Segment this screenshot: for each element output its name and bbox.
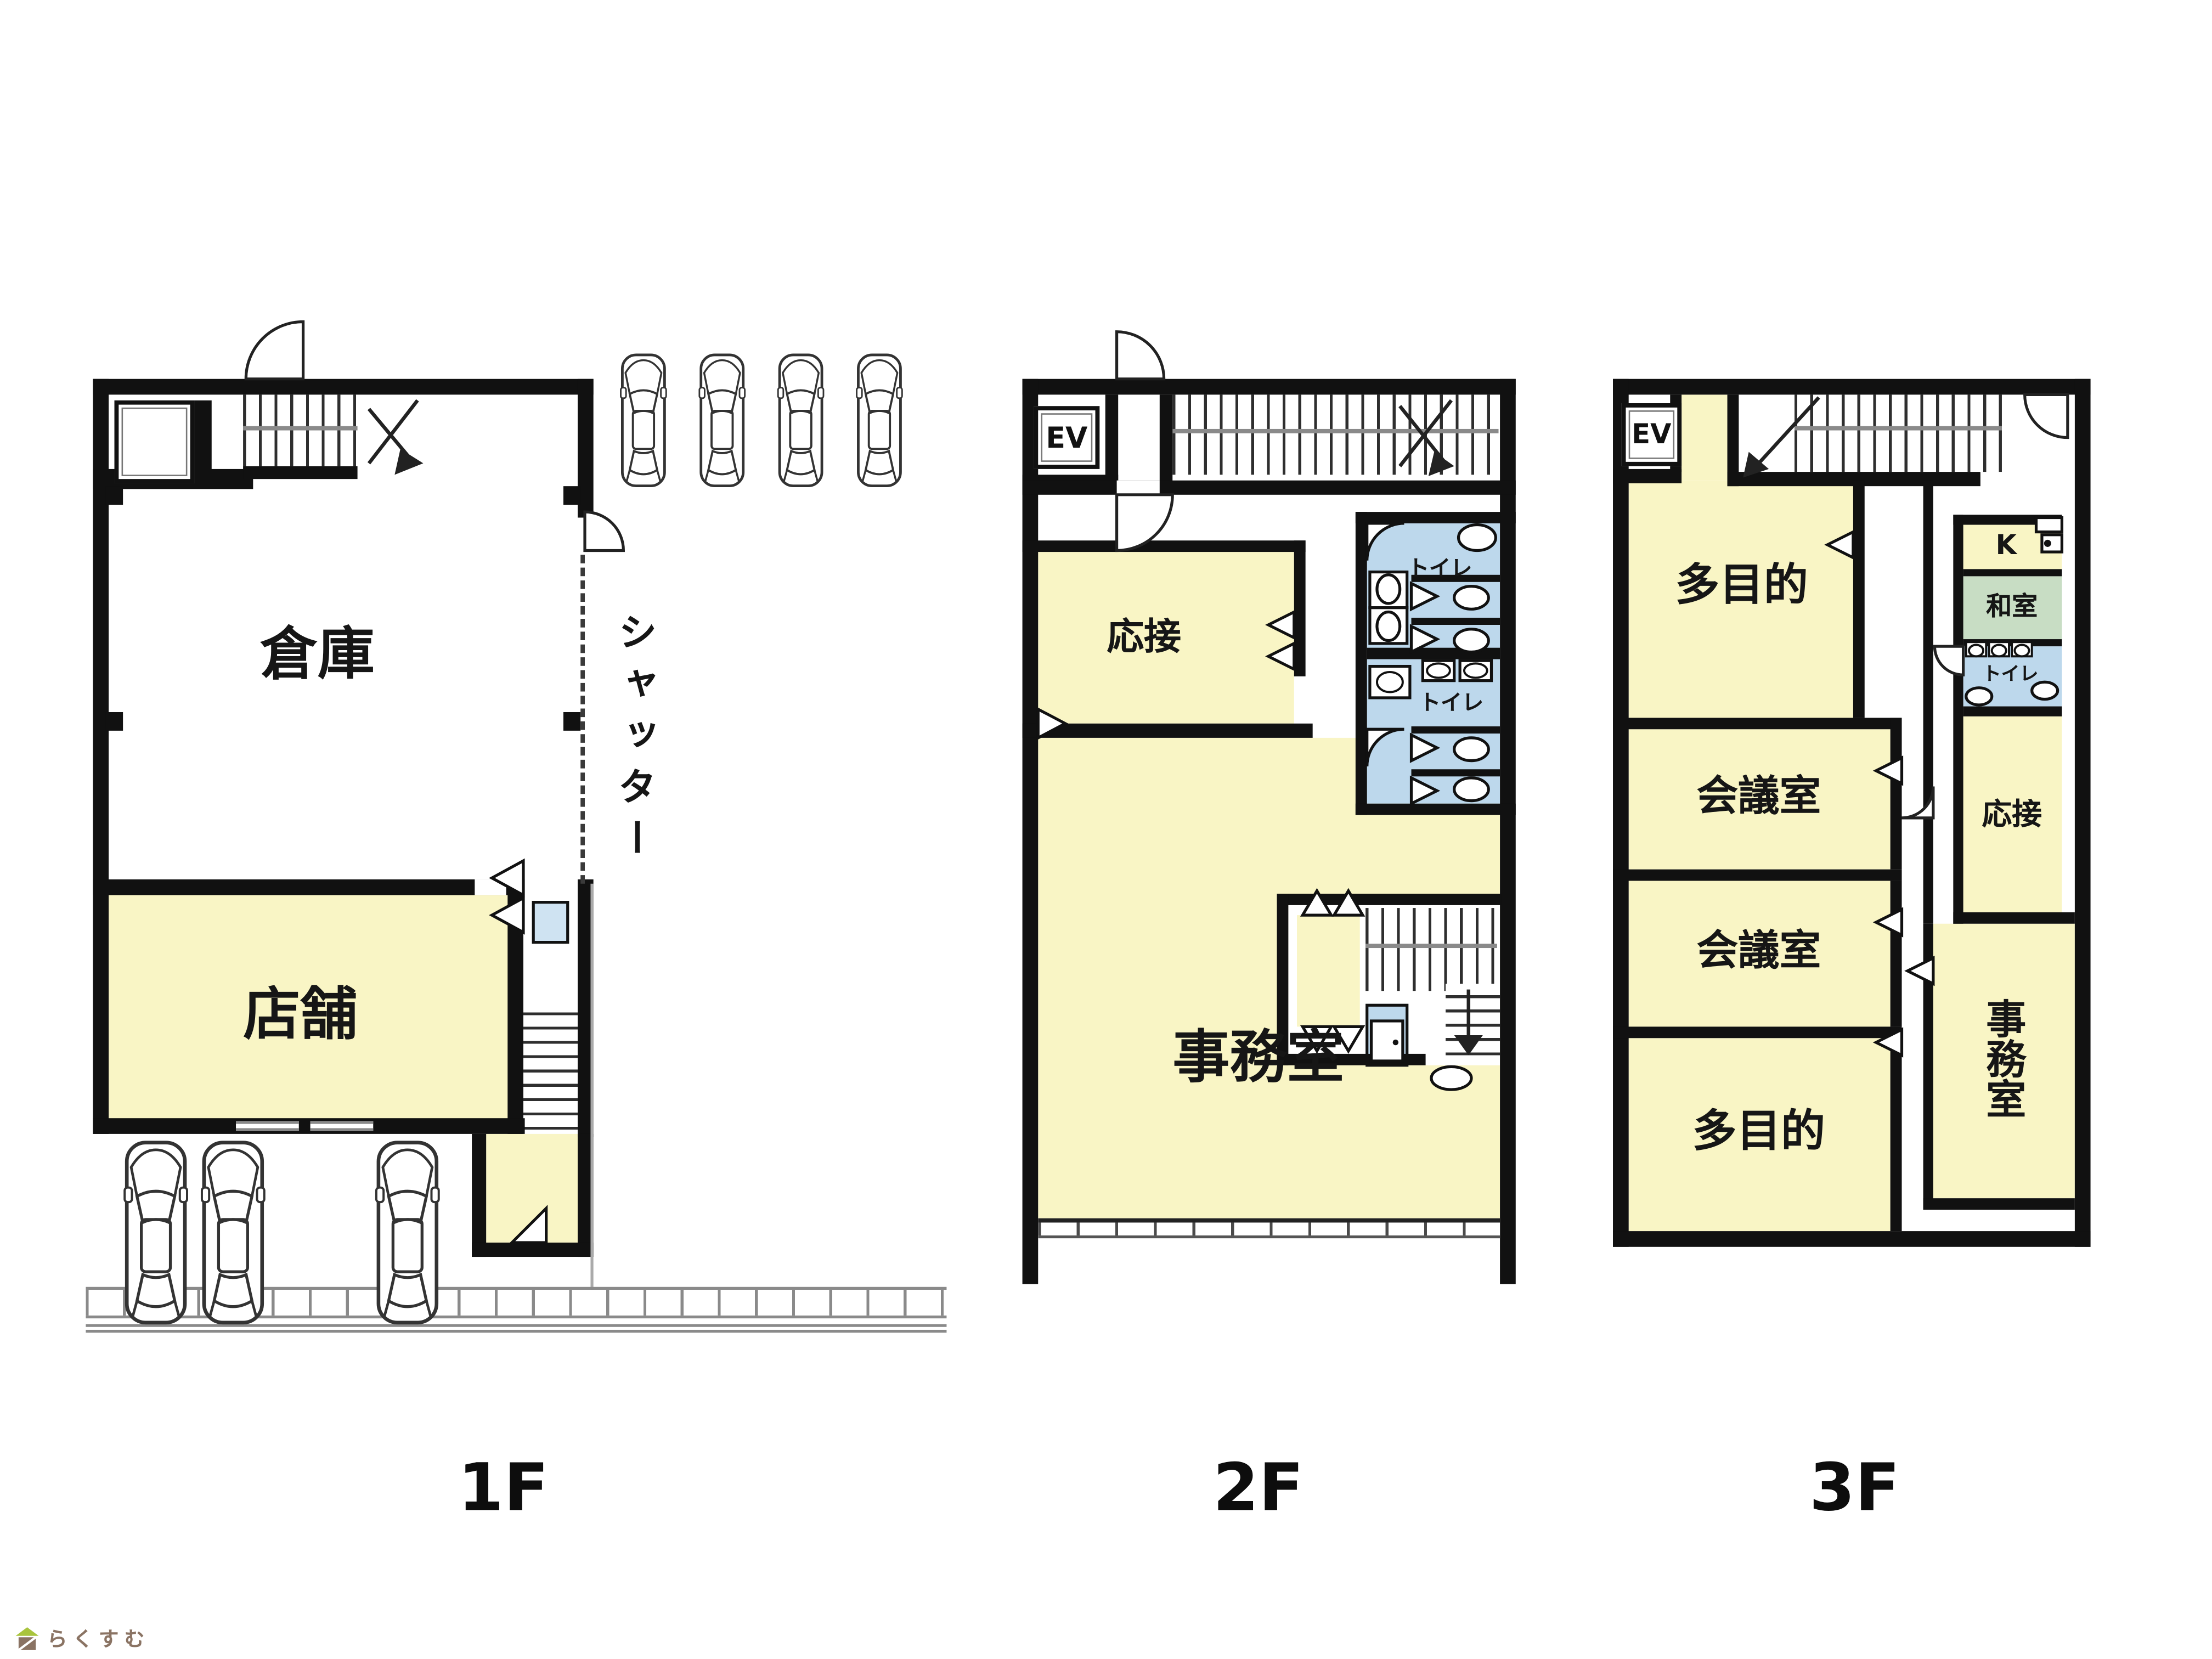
room-label-office: 事務室 <box>1983 998 2023 1118</box>
stairs-midline <box>1172 429 1498 433</box>
road-edge <box>86 1324 946 1333</box>
wall <box>1356 512 1516 523</box>
door-opening <box>1117 481 1160 495</box>
property-line <box>590 884 593 1290</box>
wall-pilaster <box>106 712 123 731</box>
elevator-label: EV <box>1046 420 1087 455</box>
wall <box>1963 639 2062 646</box>
room-label-shop: 店舗 <box>243 986 358 1043</box>
house-icon <box>14 1626 40 1651</box>
wall <box>1160 394 1172 489</box>
wall <box>1023 379 1039 1284</box>
caption-1f: 1F <box>458 1448 549 1526</box>
wall <box>1613 870 1901 881</box>
sink-fixture <box>532 901 569 944</box>
room-label-reception: 応接 <box>1982 800 2041 830</box>
wall <box>472 1243 594 1257</box>
wall <box>93 879 524 895</box>
wall <box>93 379 593 395</box>
elevator: EV <box>1622 403 1681 466</box>
wall <box>1923 1198 2075 1210</box>
wall <box>243 466 358 479</box>
elevator: EV <box>1034 406 1099 469</box>
wall <box>1891 881 1902 1027</box>
stair-landing <box>1297 915 1360 1026</box>
floor-plan-2f: EV <box>1023 343 1523 1344</box>
wall <box>1963 707 2062 716</box>
wall <box>507 879 523 1134</box>
wall <box>1613 1026 1901 1038</box>
room-label-multipurpose-top: 多目的 <box>1675 564 1808 608</box>
wall <box>1963 569 2062 576</box>
room-label-japanese: 和室 <box>1986 595 2038 620</box>
window-band <box>1038 1218 1500 1238</box>
wall <box>1367 648 1500 659</box>
wall <box>1891 1026 1902 1231</box>
wall <box>1613 379 1629 1247</box>
room-toilet-lower <box>1367 659 1500 804</box>
caption-3f: 3F <box>1809 1448 1900 1526</box>
stairs <box>523 1004 578 1130</box>
wall <box>1891 718 1902 869</box>
wall <box>1953 515 2062 524</box>
stairs-midline <box>1795 426 2002 431</box>
room-label-office: 事務室 <box>1172 1030 1344 1087</box>
caption-2f: 2F <box>1213 1448 1304 1526</box>
wall <box>1023 481 1516 495</box>
wall <box>1356 804 1516 815</box>
sidewalk <box>86 1287 946 1318</box>
room-label-multipurpose-bottom: 多目的 <box>1692 1110 1825 1155</box>
elevator-label: EV <box>1632 419 1671 450</box>
stairs <box>1365 908 1497 991</box>
wall <box>1613 1231 2091 1247</box>
wall <box>1105 394 1118 483</box>
wall <box>1023 724 1313 738</box>
stairs <box>1446 984 1500 1055</box>
room-label-toilet: トイレ <box>1983 665 2039 684</box>
stairs-midline <box>1365 944 1497 948</box>
wall <box>1023 540 1306 552</box>
floor-plan-1f: 倉庫 店舗 シャッター <box>86 343 972 1344</box>
room-toilet-upper <box>1367 523 1500 649</box>
wall <box>1023 379 1516 395</box>
wall <box>1613 469 1681 483</box>
entry-hall <box>486 1134 578 1243</box>
wall <box>1277 894 1502 905</box>
stairs <box>1172 394 1498 475</box>
wall <box>1613 718 1901 729</box>
wall <box>2075 379 2091 1247</box>
stairs-midline <box>243 426 358 431</box>
room-label-reception: 応接 <box>1107 619 1181 657</box>
wall <box>1356 512 1367 815</box>
shutter-line <box>580 555 585 883</box>
room-label-toilet-upper: トイレ <box>1408 558 1472 580</box>
wall <box>93 1118 524 1134</box>
wall <box>1923 924 1933 1210</box>
door-opening <box>475 879 506 895</box>
floor-plan-3f: EV <box>1601 343 2116 1344</box>
wall <box>1613 379 2091 395</box>
room-label-toilet-lower: トイレ <box>1419 693 1483 714</box>
site-logo: らくすむ <box>14 1624 150 1653</box>
stairs <box>1795 394 2002 472</box>
floorplan-sheet: 倉庫 店舗 シャッター <box>0 0 2212 1658</box>
room-label-kitchen: K <box>1996 533 2017 560</box>
wall <box>1923 481 1933 924</box>
wall <box>1853 481 1865 718</box>
room-multipurpose-neck <box>1681 394 1727 480</box>
wall-pilaster <box>106 486 123 505</box>
room-label-meeting-1: 会議室 <box>1696 776 1821 817</box>
wall-pilaster <box>563 712 580 731</box>
elevator-shaft <box>115 400 195 483</box>
window <box>236 1121 299 1131</box>
shutter-annotation: シャッター <box>614 612 652 870</box>
room-label-warehouse: 倉庫 <box>260 627 375 684</box>
site-logo-text: らくすむ <box>47 1624 150 1653</box>
wall <box>1294 540 1306 676</box>
window <box>311 1121 374 1131</box>
wall <box>1953 912 2075 924</box>
wall <box>472 1134 486 1257</box>
wall <box>1953 515 1963 923</box>
wall-pilaster <box>563 486 580 505</box>
room-label-meeting-2: 会議室 <box>1696 930 1821 972</box>
